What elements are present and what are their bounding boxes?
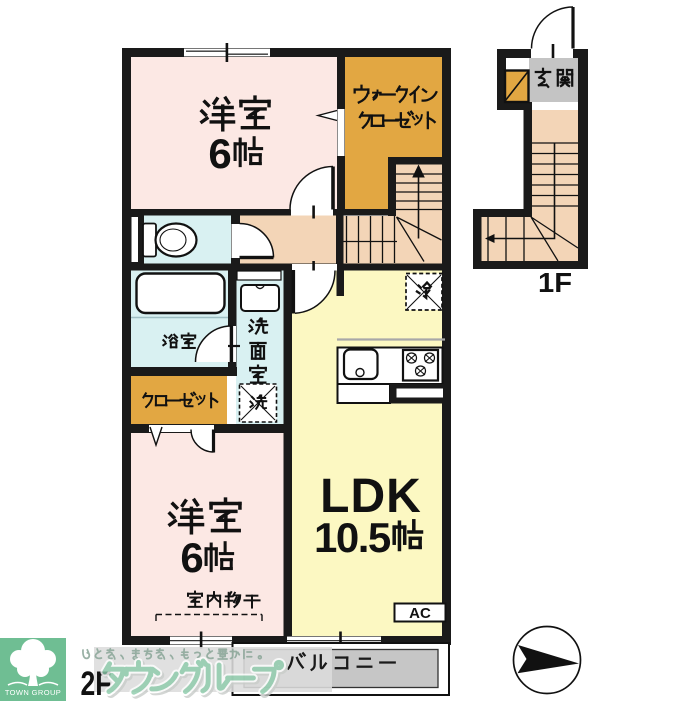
svg-text:TOWN GROUP: TOWN GROUP (5, 688, 61, 697)
svg-text:6: 6 (180, 534, 203, 581)
svg-text:1F: 1F (538, 267, 572, 298)
svg-text:AC: AC (409, 605, 431, 622)
svg-text:10.5: 10.5 (314, 514, 391, 561)
svg-text:6: 6 (208, 130, 231, 177)
